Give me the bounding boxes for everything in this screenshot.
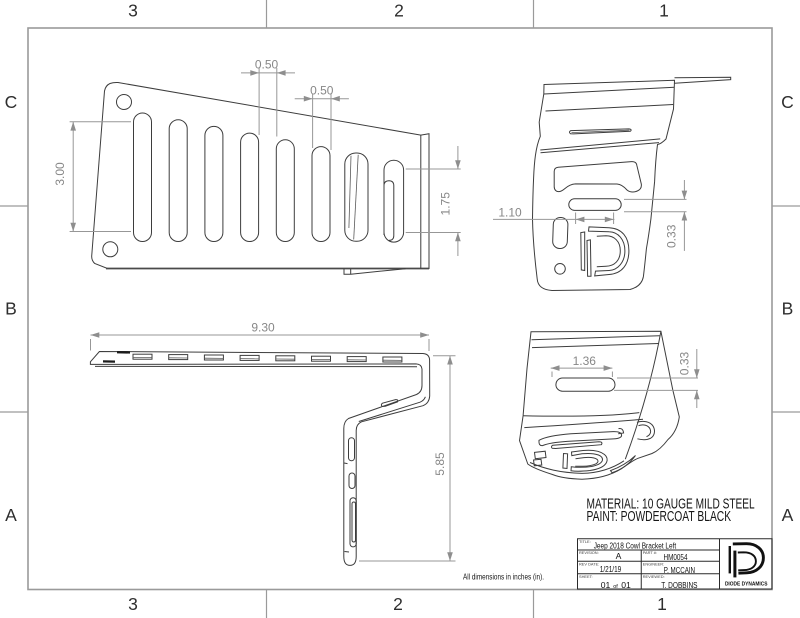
svg-text:HM0054: HM0054 [664,552,688,562]
svg-text:A: A [782,505,794,525]
svg-text:1.36: 1.36 [573,354,597,368]
svg-text:5.85: 5.85 [433,452,447,476]
svg-text:3: 3 [128,1,138,21]
svg-text:2: 2 [393,594,403,614]
svg-text:1/21/19: 1/21/19 [600,564,622,574]
svg-text:SHEET:: SHEET: [579,574,593,579]
svg-text:9.30: 9.30 [251,321,275,335]
svg-text:All dimensions in inches (in).: All dimensions in inches (in). [463,572,544,582]
svg-text:0.33: 0.33 [665,224,679,248]
svg-text:01: 01 [601,580,611,590]
svg-text:Jeep 2018 Cowl Bracket Left: Jeep 2018 Cowl Bracket Left [594,540,677,550]
svg-text:3: 3 [128,594,138,614]
svg-text:T. DOBBINS: T. DOBBINS [661,580,697,590]
svg-text:REV DATE:: REV DATE: [579,562,599,567]
svg-text:REVISION:: REVISION: [579,550,599,555]
svg-text:01: 01 [621,580,631,590]
svg-text:A: A [616,551,622,561]
svg-text:0.50: 0.50 [310,84,334,98]
svg-text:TITLE:: TITLE: [579,539,591,544]
svg-text:0.33: 0.33 [678,351,692,375]
svg-text:PART #:: PART #: [643,550,657,555]
svg-text:P. MCCAIN: P. MCCAIN [664,565,695,575]
svg-text:3.00: 3.00 [53,162,67,186]
svg-text:A: A [5,505,17,525]
svg-text:1.10: 1.10 [498,205,522,219]
svg-text:PAINT: POWDERCOAT BLACK: PAINT: POWDERCOAT BLACK [587,509,732,525]
svg-text:C: C [5,92,18,112]
svg-text:1.75: 1.75 [439,192,453,216]
svg-text:1: 1 [659,1,669,21]
svg-text:0.50: 0.50 [255,58,279,72]
svg-text:of: of [613,584,618,590]
svg-text:2: 2 [394,1,404,21]
svg-text:C: C [781,92,794,112]
svg-text:B: B [782,299,794,319]
svg-text:DIODE DYNAMICS: DIODE DYNAMICS [725,582,768,588]
svg-text:ENGINEER:: ENGINEER: [643,562,664,567]
svg-text:1: 1 [657,594,667,614]
svg-text:REVIEWED:: REVIEWED: [643,574,665,579]
svg-text:B: B [5,299,17,319]
